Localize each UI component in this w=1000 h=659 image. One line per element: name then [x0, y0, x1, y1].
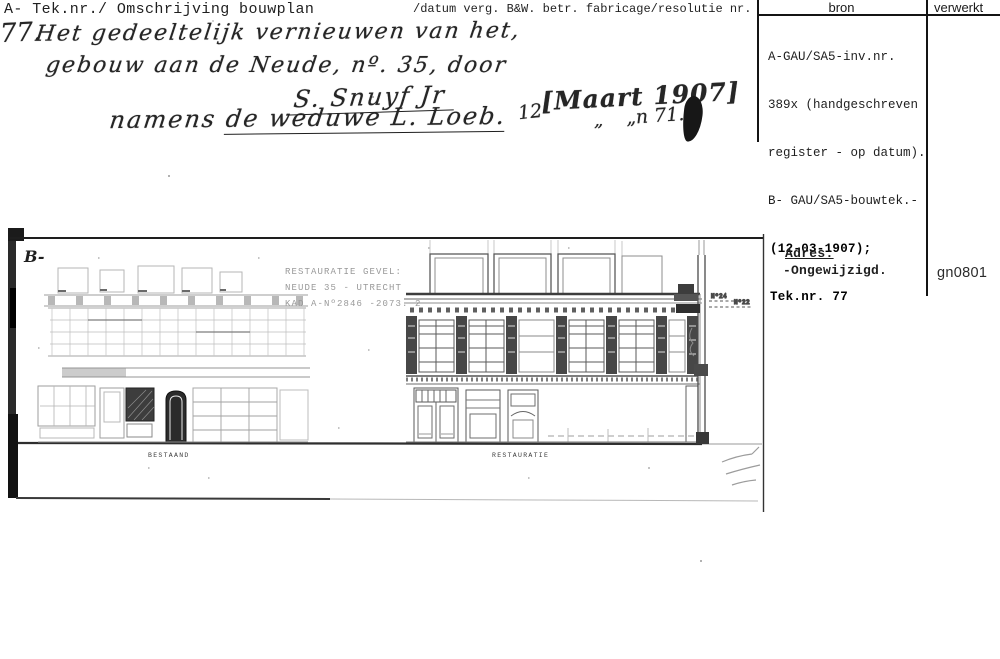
header-left-label: A- Tek.nr./ Omschrijving bouwplan [4, 1, 314, 18]
bron-line: A-GAU/SA5-inv.nr. [768, 49, 926, 65]
right-facade-restauratie [404, 240, 702, 443]
section-label-no22: Nº22 [734, 299, 750, 306]
stamp-line-2: NEUDE 35 - UTRECHT [285, 283, 402, 293]
bron-line: register - op datum). [768, 145, 926, 161]
ground-line [18, 443, 762, 444]
faded-stamp-text: RESTAURATIE GEVEL: NEUDE 35 - UTRECHT KA… [285, 267, 422, 309]
description-line-2: gebouw aan de Neude, nº. 35, door [44, 53, 509, 78]
header-center-label: /datum verg. B&W. betr. fabricage/resolu… [413, 2, 751, 16]
column-header-bron: bron [757, 0, 926, 15]
verwerkt-code: gn0801 [937, 265, 987, 281]
scan-speck [212, 20, 214, 22]
sheet-label-b: B- [23, 247, 44, 266]
applicant-prefix: namens [108, 105, 228, 134]
ditto-mark: „ [594, 110, 603, 131]
bron-stamped-teknr: Tek.nr. 77 [768, 289, 926, 305]
column-header-verwerkt: verwerkt [934, 0, 983, 15]
scan-speck [700, 560, 702, 562]
adres-value: -Ongewijzigd. [783, 263, 887, 278]
facade-drawing-sheet: B- [8, 228, 765, 518]
date-note: „n 71. [625, 103, 685, 129]
bron-line: 389x (handgeschreven [768, 97, 926, 113]
pencil-scribbles [722, 447, 760, 485]
table-divider-main-bron [757, 0, 759, 142]
scan-speck [168, 175, 170, 177]
caption-bestaand: BESTAAND [148, 452, 190, 459]
table-divider-bron-verwerkt [926, 0, 928, 296]
stamp-line-1: RESTAURATIE GEVEL: [285, 267, 402, 277]
adres-label: Adres: [785, 246, 834, 261]
description-line-1: Het gedeeltelijk vernieuwen van het, [34, 18, 522, 46]
stamp-line-3: KAD A-Nº2846 -2073. 2 [285, 299, 422, 309]
scan-speck [372, 96, 374, 98]
applicant-line: namens de weduwe L. Loeb. [108, 102, 508, 134]
left-facade-bestaand [38, 266, 310, 442]
section-label-no24: Nº24 [711, 293, 727, 300]
archive-card-scan: A- Tek.nr./ Omschrijving bouwplan /datum… [0, 0, 1000, 659]
caption-restauratie: RESTAURATIE [492, 452, 549, 459]
applicant-name-underlined: de weduwe L. Loeb. [224, 102, 508, 135]
date-day: 12 [517, 100, 543, 124]
bron-reference-block: A-GAU/SA5-inv.nr. 389x (handgeschreven r… [768, 17, 926, 337]
bron-line: B- GAU/SA5-bouwtek.- [768, 193, 926, 209]
